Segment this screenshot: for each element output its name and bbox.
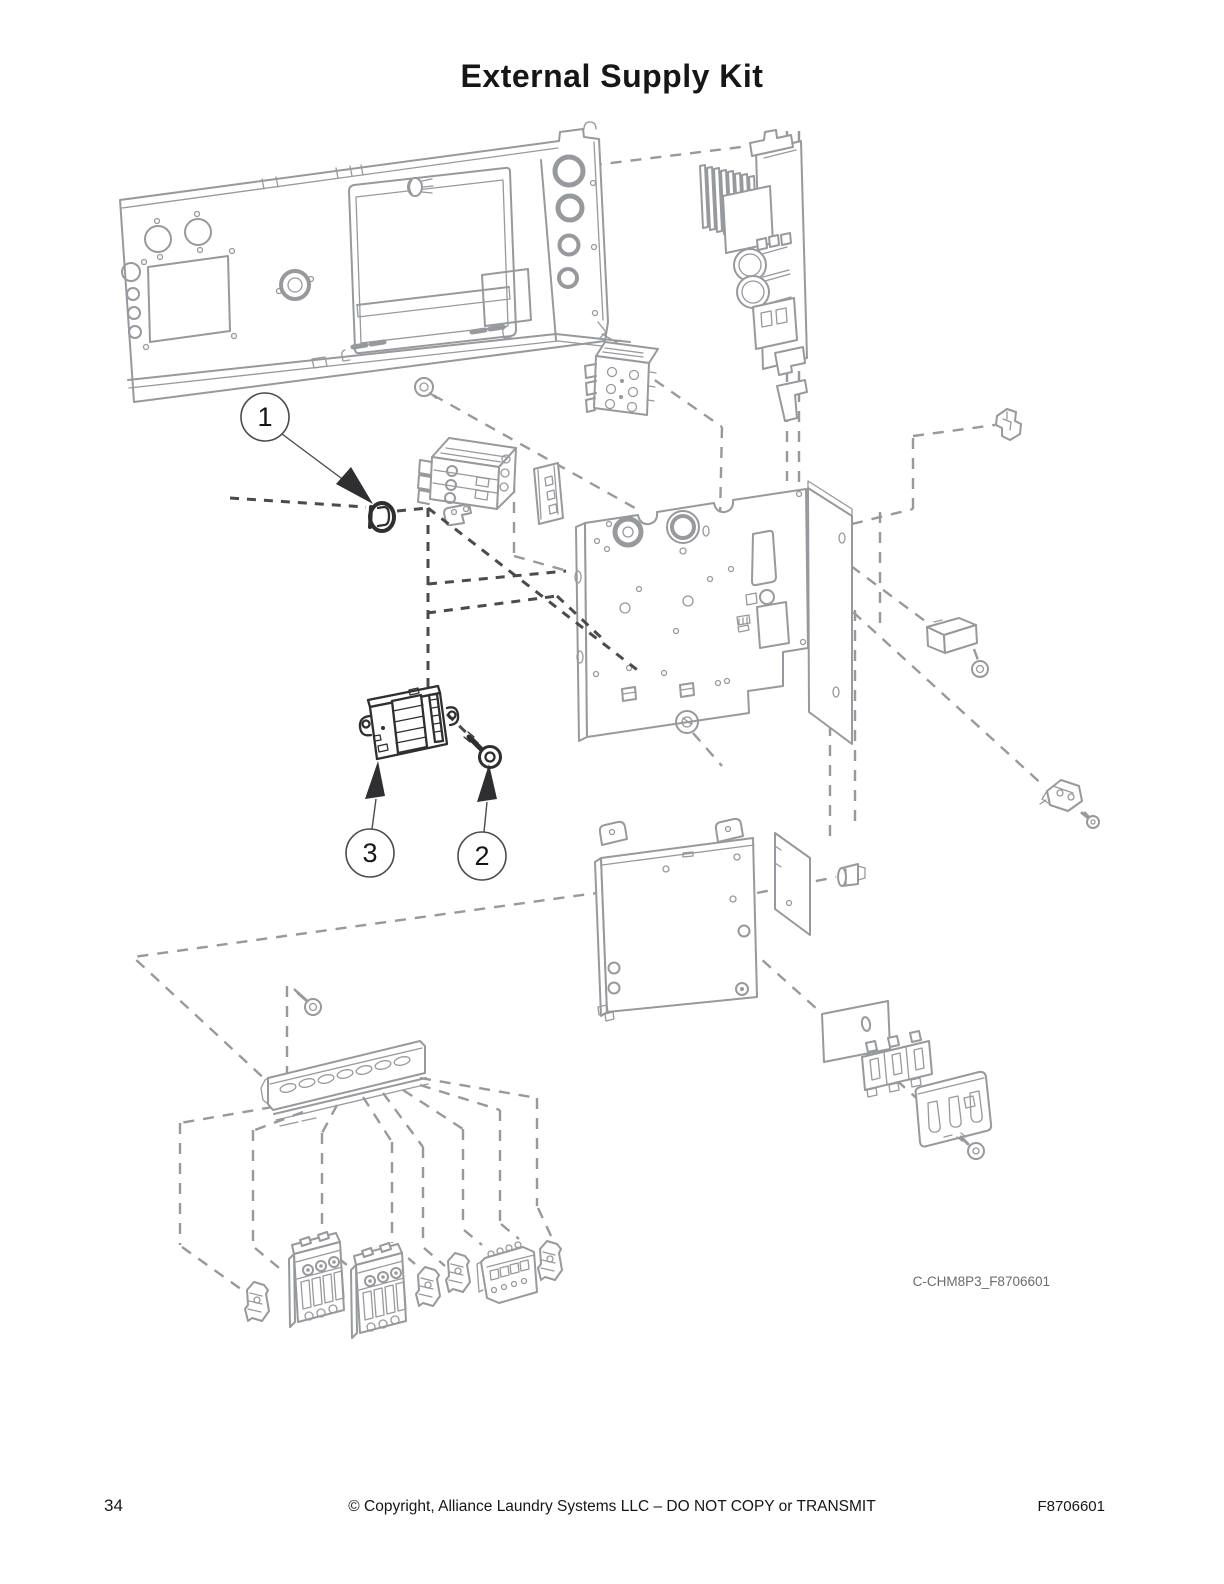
cover-screw bbox=[957, 1133, 984, 1159]
terminal-block bbox=[585, 342, 658, 415]
callout-2: 2 bbox=[458, 764, 506, 880]
clip-screw bbox=[1082, 813, 1099, 828]
rivet bbox=[838, 864, 865, 886]
callout-1: 1 bbox=[241, 393, 373, 504]
mounting-plate bbox=[575, 481, 852, 744]
screw-item-2 bbox=[464, 732, 501, 768]
aux-contact-4 bbox=[538, 1241, 562, 1280]
callout-3: 3 bbox=[346, 761, 394, 877]
callout-2-number: 2 bbox=[474, 841, 489, 871]
callout-3-number: 3 bbox=[362, 838, 377, 868]
top-clip bbox=[996, 409, 1021, 440]
terminal-cover bbox=[916, 1072, 992, 1147]
three-pole-terminal-block bbox=[418, 438, 516, 509]
spacer-block bbox=[927, 618, 977, 653]
aux-contact-3 bbox=[446, 1253, 470, 1292]
compact-contactor bbox=[477, 1242, 537, 1303]
aux-contact-2 bbox=[416, 1267, 440, 1306]
cover-plate bbox=[775, 833, 810, 935]
contactor-1 bbox=[289, 1232, 344, 1327]
grommet-item-1 bbox=[370, 503, 394, 531]
power-supply-assembly bbox=[700, 130, 807, 421]
din-rail-segment bbox=[534, 463, 563, 524]
rail-screw bbox=[298, 993, 321, 1015]
hinge-clip bbox=[1040, 780, 1082, 811]
aux-contact-1 bbox=[245, 1282, 269, 1321]
manual-page: External Supply Kit bbox=[0, 0, 1224, 1584]
document-number: F8706601 bbox=[1037, 1498, 1105, 1515]
exploded-parts-diagram: 1 3 2 bbox=[0, 0, 1224, 1584]
contactor-2 bbox=[351, 1243, 406, 1338]
callout-1-number: 1 bbox=[257, 402, 272, 432]
diagram-code-label: C-CHM8P3_F8706601 bbox=[913, 1274, 1050, 1289]
electrical-box bbox=[595, 819, 757, 1021]
loose-screw bbox=[415, 378, 436, 398]
page-footer: 34 © Copyright, Alliance Laundry Systems… bbox=[0, 1496, 1224, 1526]
control-module-item-3 bbox=[360, 686, 458, 759]
control-panel bbox=[120, 122, 630, 402]
lock-nut bbox=[972, 661, 988, 677]
